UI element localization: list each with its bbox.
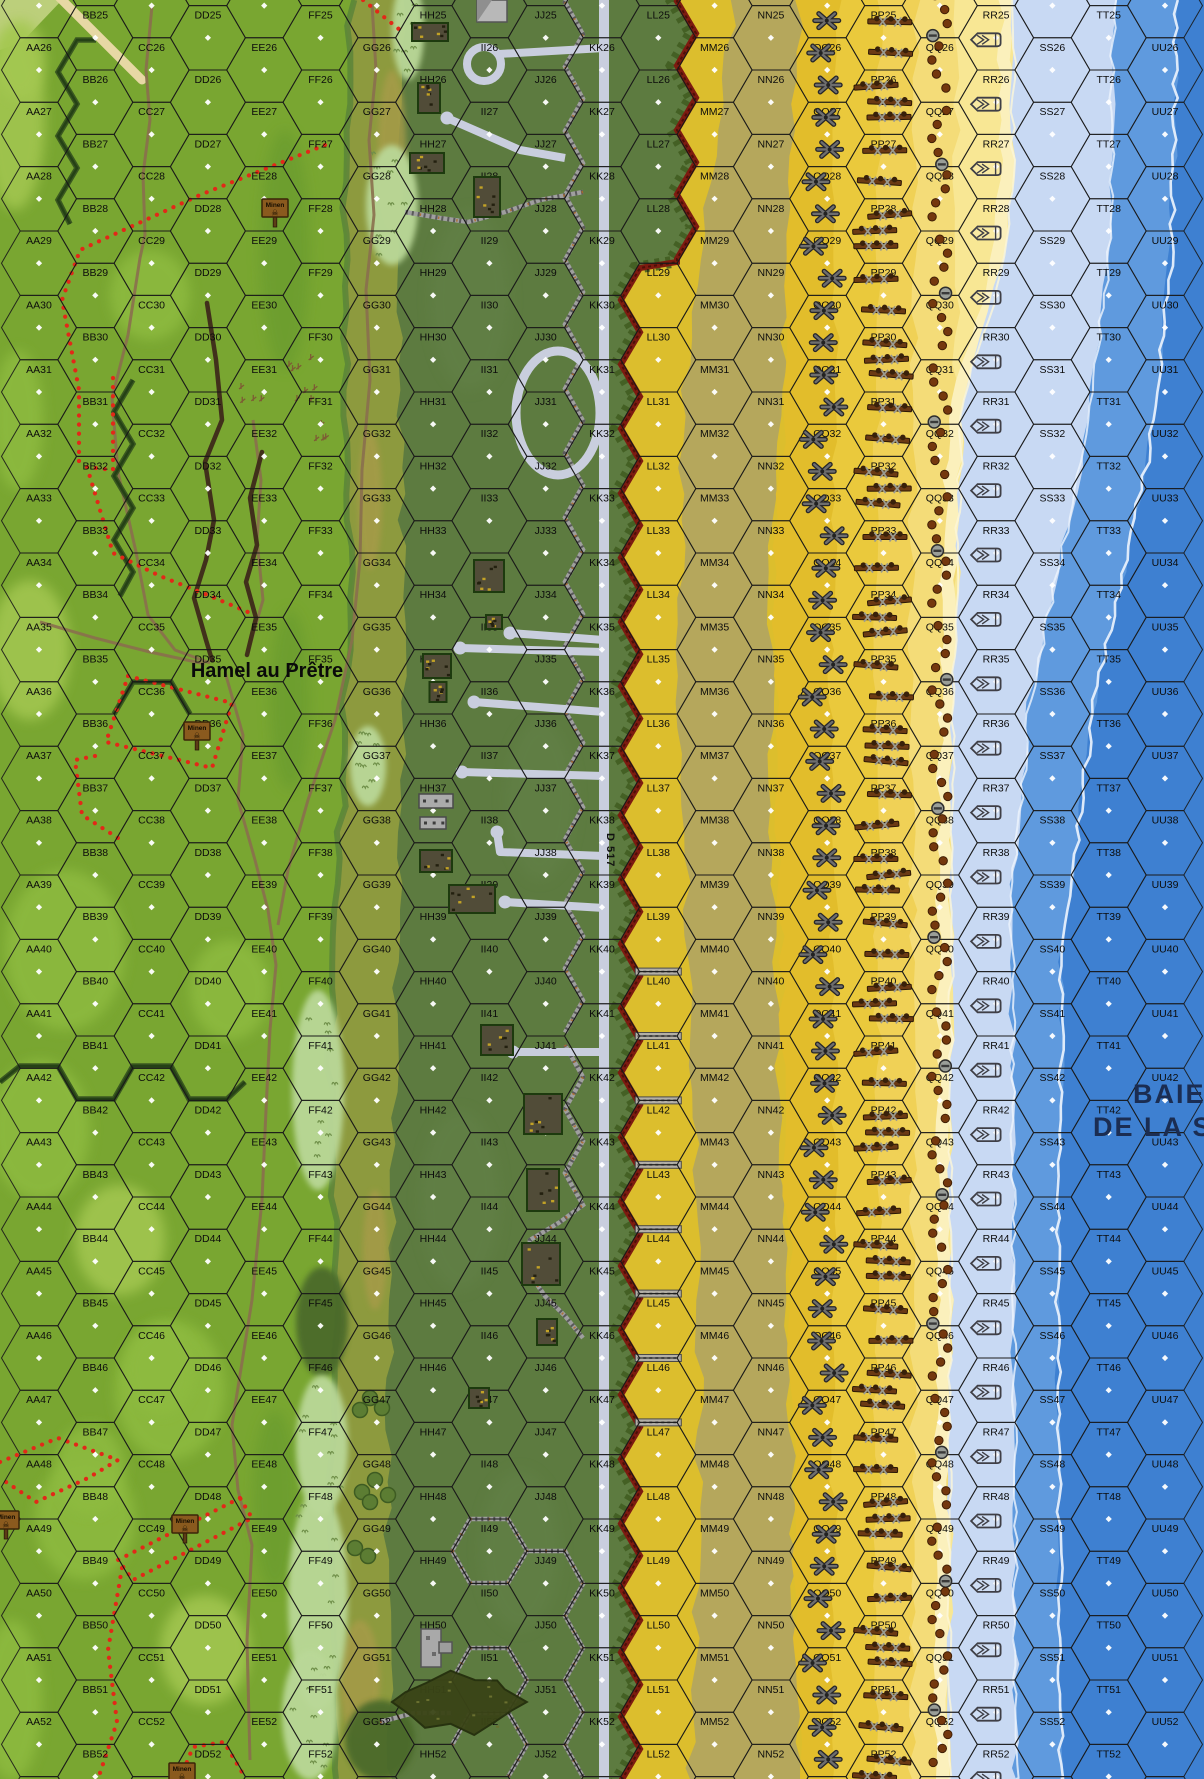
mine-icon [936, 700, 944, 708]
hex-label: BB45 [82, 1298, 108, 1310]
hex-label: JJ52 [535, 1748, 557, 1760]
hex-label: SS39 [1040, 879, 1066, 891]
hex-label: FF38 [308, 847, 333, 859]
hex-label: KK37 [589, 750, 615, 762]
hex-label: CC33 [138, 493, 165, 505]
hex-label: MM37 [700, 750, 729, 762]
hex-label: RR33 [983, 525, 1010, 537]
hex-label: NN52 [757, 1748, 784, 1760]
hex-label: DD33 [194, 525, 221, 537]
hex-label: RR39 [983, 911, 1010, 923]
hex-label: GG33 [363, 493, 391, 505]
landing-craft-icon [971, 227, 1001, 240]
hex-label: AA26 [26, 42, 52, 54]
hex-label: DD30 [194, 332, 221, 344]
mine-icon [941, 1114, 949, 1122]
hex-label: RR46 [983, 1362, 1010, 1374]
hex-label: CC40 [138, 943, 165, 955]
hex-label: FF47 [308, 1426, 333, 1438]
hex-label: KK28 [589, 171, 615, 183]
hex-label: TT37 [1096, 782, 1121, 794]
building-camo [481, 1025, 513, 1055]
hex-label: FF48 [308, 1491, 333, 1503]
hex-label: JJ49 [535, 1555, 557, 1567]
hex-label: SS34 [1040, 557, 1066, 569]
hex-label: LL36 [647, 718, 671, 730]
mine-icon [940, 470, 948, 478]
hex-label: CC43 [138, 1137, 165, 1149]
hex-label: MM45 [700, 1265, 729, 1277]
hex-label: DD37 [194, 782, 221, 794]
hex-label: JJ31 [535, 396, 557, 408]
hex-label: NN51 [757, 1684, 784, 1696]
mine-icon [935, 971, 943, 979]
landing-craft-icon [971, 291, 1001, 304]
mine-icon [928, 1537, 936, 1545]
hex-label: DD28 [194, 203, 221, 215]
landing-craft-icon [971, 677, 1001, 690]
landing-craft-icon [971, 1386, 1001, 1399]
hex-label: QQ50 [926, 1587, 954, 1599]
mine-icon [935, 1436, 943, 1444]
hex-label: AA43 [26, 1137, 52, 1149]
hex-label: RR42 [983, 1104, 1010, 1116]
building-camo [537, 1319, 557, 1345]
hex-label: GG27 [363, 106, 391, 118]
hex-label: RR45 [983, 1298, 1010, 1310]
hex-label: UU40 [1152, 943, 1179, 955]
mine-icon [940, 1408, 948, 1416]
hex-label: SS26 [1040, 42, 1066, 54]
mine-icon [943, 879, 951, 887]
hex-label: UU28 [1152, 171, 1179, 183]
hex-label: NN38 [757, 847, 784, 859]
hex-label: RR32 [983, 460, 1010, 472]
hex-label: NN45 [757, 1298, 784, 1310]
hex-label: UU26 [1152, 42, 1179, 54]
hex-label: GG49 [363, 1523, 391, 1535]
hex-label: HH46 [420, 1362, 447, 1374]
hex-label: DD27 [194, 138, 221, 150]
hex-label: KK48 [589, 1459, 615, 1471]
hex-label: TT33 [1096, 525, 1121, 537]
hex-label: KK45 [589, 1265, 615, 1277]
mine-icon [930, 378, 938, 386]
hex-label: DD40 [194, 976, 221, 988]
hex-label: MM42 [700, 1072, 729, 1084]
landing-craft-icon [971, 549, 1001, 562]
mine-icon [931, 921, 939, 929]
hex-label: FF39 [308, 911, 333, 923]
mine-icon [942, 557, 950, 565]
hex-label: EE30 [251, 299, 277, 311]
hex-label: FF33 [308, 525, 333, 537]
building-camo [412, 23, 448, 41]
hex-label: AA41 [26, 1008, 52, 1020]
hex-label: TT39 [1096, 911, 1121, 923]
hex-label: EE40 [251, 943, 277, 955]
hex-label: RR35 [983, 654, 1010, 666]
hex-label: DD47 [194, 1426, 221, 1438]
hex-label: DD50 [194, 1620, 221, 1632]
hex-label: RR48 [983, 1491, 1010, 1503]
mine-icon [929, 1694, 937, 1702]
hex-label: LL35 [647, 654, 671, 666]
hex-label: RR29 [983, 267, 1010, 279]
building-bunker [420, 817, 446, 829]
mine-icon [930, 843, 938, 851]
hex-label: HH44 [420, 1233, 447, 1245]
hex-label: II41 [481, 1008, 499, 1020]
hex-label: MM49 [700, 1523, 729, 1535]
hex-label: DD52 [194, 1748, 221, 1760]
hex-label: BB30 [82, 332, 108, 344]
mine-icon [944, 1265, 952, 1273]
mine-icon [931, 1137, 939, 1145]
landing-craft-icon [971, 1708, 1001, 1721]
marsh-patch [292, 990, 344, 1190]
hex-label: RR31 [983, 396, 1010, 408]
hex-label: RR52 [983, 1748, 1010, 1760]
mine-icon [944, 1730, 952, 1738]
hex-label: KK30 [589, 299, 615, 311]
hex-label: DD26 [194, 74, 221, 86]
hex-label: LL30 [647, 332, 671, 344]
hex-label: II37 [481, 750, 499, 762]
mine-icon [943, 1565, 951, 1573]
hex-label: JJ41 [535, 1040, 557, 1052]
hex-label: JJ50 [535, 1620, 557, 1632]
hex-label: BB27 [82, 138, 108, 150]
hex-label: SS29 [1040, 235, 1066, 247]
hex-label: SS50 [1040, 1587, 1066, 1599]
hex-label: EE32 [251, 428, 277, 440]
hex-label: DD31 [194, 396, 221, 408]
hex-label: FF25 [308, 10, 333, 22]
hex-label: DD48 [194, 1491, 221, 1503]
hex-label: KK44 [589, 1201, 615, 1213]
hex-label: MM52 [700, 1716, 729, 1728]
hex-label: HH52 [420, 1748, 447, 1760]
hex-label: BB47 [82, 1426, 108, 1438]
hex-label: HH32 [420, 460, 447, 472]
hex-label: EE51 [251, 1652, 277, 1664]
hex-label: FF44 [308, 1233, 333, 1245]
hex-label: RR37 [983, 782, 1010, 794]
hex-label: MM30 [700, 299, 729, 311]
hex-label: BB50 [82, 1620, 108, 1632]
hex-label: HH48 [420, 1491, 447, 1503]
hex-label: EE36 [251, 686, 277, 698]
hex-label: MM32 [700, 428, 729, 440]
mine-icon [938, 341, 946, 349]
hex-label: CC34 [138, 557, 165, 569]
hex-label: NN37 [757, 782, 784, 794]
hex-label: GG42 [363, 1072, 391, 1084]
mine-icon [937, 778, 945, 786]
mine-icon [933, 120, 941, 128]
mine-icon [928, 213, 936, 221]
hex-label: FF27 [308, 138, 333, 150]
hex-label: MM41 [700, 1008, 729, 1020]
hex-label: JJ51 [535, 1684, 557, 1696]
hex-label: TT43 [1096, 1169, 1121, 1181]
hex-label: DD29 [194, 267, 221, 279]
building-camo [410, 153, 444, 173]
hex-label: AA34 [26, 557, 52, 569]
hex-label: JJ48 [535, 1491, 557, 1503]
skull-icon: ☠ [2, 1521, 9, 1530]
hex-label: KK33 [589, 493, 615, 505]
beach-stake-obstacle-icon [854, 853, 898, 863]
minefield-sign: Minen☠ [169, 1763, 195, 1779]
hex-label: GG39 [363, 879, 391, 891]
mine-icon [932, 1008, 940, 1016]
hex-label: UU50 [1152, 1587, 1179, 1599]
mine-icon [928, 521, 936, 529]
teller-mine-icon [927, 1318, 939, 1330]
hex-label: FF26 [308, 74, 333, 86]
hex-label: II26 [481, 42, 499, 54]
hex-label: LL47 [647, 1426, 671, 1438]
hex-label: NN31 [757, 396, 784, 408]
mine-icon [928, 134, 936, 142]
hex-label: UU41 [1152, 1008, 1179, 1020]
hex-label: UU37 [1152, 750, 1179, 762]
hex-label: FF51 [308, 1684, 333, 1696]
hex-label: RR38 [983, 847, 1010, 859]
hex-label: AA52 [26, 1716, 52, 1728]
hex-label: LL34 [647, 589, 671, 601]
skull-icon: ☠ [178, 1773, 185, 1779]
teller-mine-icon [940, 1575, 952, 1587]
hex-label: RR49 [983, 1555, 1010, 1567]
building-camo [474, 177, 500, 217]
mine-icon [928, 1151, 936, 1159]
hex-label: GG28 [363, 171, 391, 183]
hex-label: TT48 [1096, 1491, 1121, 1503]
hex-label: SS41 [1040, 1008, 1066, 1020]
mine-icon [942, 1022, 950, 1030]
mine-icon [928, 1372, 936, 1380]
mine-icon [932, 1473, 940, 1481]
hex-label: NN47 [757, 1426, 784, 1438]
hex-label: EE44 [251, 1201, 277, 1213]
mine-icon [928, 442, 936, 450]
hex-label: LL29 [647, 267, 671, 279]
hex-label: TT25 [1096, 10, 1121, 22]
mine-icon [929, 1758, 937, 1766]
hex-label: LL48 [647, 1491, 671, 1503]
hex-label: SS30 [1040, 299, 1066, 311]
hex-label: QQ47 [926, 1394, 954, 1406]
hex-label: MM26 [700, 42, 729, 54]
hex-label: CC50 [138, 1587, 165, 1599]
bush-icon [363, 1495, 378, 1510]
hex-label: GG43 [363, 1137, 391, 1149]
hex-label: TT51 [1096, 1684, 1121, 1696]
hex-label: BB28 [82, 203, 108, 215]
hex-label: FF31 [308, 396, 333, 408]
mine-icon [936, 893, 944, 901]
hex-label: HH43 [420, 1169, 447, 1181]
mine-icon [936, 1165, 944, 1173]
landing-craft-icon [971, 355, 1001, 368]
hex-label: BB41 [82, 1040, 108, 1052]
hex-label: BB32 [82, 460, 108, 472]
hex-label: CC31 [138, 364, 165, 376]
hex-label: RR47 [983, 1426, 1010, 1438]
landing-craft-icon [971, 613, 1001, 626]
hex-label: GG34 [363, 557, 391, 569]
teller-mine-icon [928, 931, 940, 943]
hex-label: FF34 [308, 589, 333, 601]
hex-label: EE50 [251, 1587, 277, 1599]
hex-label: NN42 [757, 1104, 784, 1116]
mine-icon [934, 1551, 942, 1559]
hex-label: KK47 [589, 1394, 615, 1406]
hex-label: EE29 [251, 235, 277, 247]
hex-label: JJ40 [535, 976, 557, 988]
hex-label: EE34 [251, 557, 277, 569]
hex-label: SS49 [1040, 1523, 1066, 1535]
hex-label: AA30 [26, 299, 52, 311]
road-name-label: D 517 [604, 833, 616, 867]
teller-mine-icon [936, 1446, 948, 1458]
hex-label: MM46 [700, 1330, 729, 1342]
marsh-patch [350, 726, 386, 806]
hex-label: MM35 [700, 621, 729, 633]
landing-craft-icon [971, 1064, 1001, 1077]
hex-label: GG36 [363, 686, 391, 698]
hex-label: LL37 [647, 782, 671, 794]
hex-label: BB31 [82, 396, 108, 408]
hex-label: UU47 [1152, 1394, 1179, 1406]
hex-label: JJ46 [535, 1362, 557, 1374]
hex-label: MM44 [700, 1201, 729, 1213]
hex-label: LL25 [647, 10, 671, 22]
teller-mine-icon [936, 1189, 948, 1201]
hex-label: TT31 [1096, 396, 1121, 408]
hex-label: II31 [481, 364, 499, 376]
hex-label: BB25 [82, 10, 108, 22]
hex-label: EE47 [251, 1394, 277, 1406]
mine-icon [934, 148, 942, 156]
mine-icon [929, 1229, 937, 1237]
teller-mine-icon [940, 287, 952, 299]
hex-label: CC28 [138, 171, 165, 183]
hex-label: MM40 [700, 943, 729, 955]
hex-label: NN25 [757, 10, 784, 22]
hex-label: NN32 [757, 460, 784, 472]
hex-label: EE35 [251, 621, 277, 633]
hex-label: MM39 [700, 879, 729, 891]
hex-label: BB35 [82, 654, 108, 666]
hex-label: GG31 [363, 364, 391, 376]
hex-label: HH41 [420, 1040, 447, 1052]
hex-label: AA48 [26, 1459, 52, 1471]
hex-label: II44 [481, 1201, 499, 1213]
hex-label: AA37 [26, 750, 52, 762]
teller-mine-icon [932, 802, 944, 814]
mine-icon [928, 56, 936, 64]
mine-icon [939, 857, 947, 865]
hex-label: EE33 [251, 493, 277, 505]
hex-label: LL40 [647, 976, 671, 988]
landing-craft-icon [971, 742, 1001, 755]
hex-label: II30 [481, 299, 499, 311]
hex-label: BB42 [82, 1104, 108, 1116]
hex-label: GG46 [363, 1330, 391, 1342]
hex-label: MM50 [700, 1587, 729, 1599]
hex-label: DD39 [194, 911, 221, 923]
hex-label: LL41 [647, 1040, 671, 1052]
hex-label: JJ26 [535, 74, 557, 86]
hex-label: UU38 [1152, 815, 1179, 827]
hex-label: GG51 [363, 1652, 391, 1664]
hex-label: NN43 [757, 1169, 784, 1181]
mine-icon [934, 1086, 942, 1094]
hex-label: DD38 [194, 847, 221, 859]
landing-craft-icon [971, 98, 1001, 111]
mine-icon [942, 84, 950, 92]
road-dead-end [441, 112, 454, 125]
hex-label: AA45 [26, 1265, 52, 1277]
mine-icon [937, 1716, 945, 1724]
hex-label: MM34 [700, 557, 729, 569]
landing-craft-icon [971, 806, 1001, 819]
mine-icon [928, 1459, 936, 1467]
hex-label: SS52 [1040, 1716, 1066, 1728]
hex-label: II38 [481, 815, 499, 827]
hex-label: KK49 [589, 1523, 615, 1535]
hex-label: SS40 [1040, 943, 1066, 955]
hex-label: LL46 [647, 1362, 671, 1374]
hex-label: FF32 [308, 460, 333, 472]
hex-label: UU49 [1152, 1523, 1179, 1535]
hex-label: DD42 [194, 1104, 221, 1116]
hex-label: NN33 [757, 525, 784, 537]
hex-label: MM33 [700, 493, 729, 505]
hex-label: FF36 [308, 718, 333, 730]
hex-label: MM31 [700, 364, 729, 376]
hex-label: HH31 [420, 396, 447, 408]
hex-label: II42 [481, 1072, 499, 1084]
hex-label: DD45 [194, 1298, 221, 1310]
hex-label: BB29 [82, 267, 108, 279]
hex-label: GG38 [363, 815, 391, 827]
hex-label: AA35 [26, 621, 52, 633]
hex-label: II45 [481, 1265, 499, 1277]
hex-label: JJ36 [535, 718, 557, 730]
hex-label: TT32 [1096, 460, 1121, 472]
hex-label: FF45 [308, 1298, 333, 1310]
hex-label: CC48 [138, 1459, 165, 1471]
mine-icon [930, 1680, 938, 1688]
beach-stake-obstacle-icon [869, 1335, 913, 1345]
hex-label: NN26 [757, 74, 784, 86]
hex-label: BB51 [82, 1684, 108, 1696]
mine-icon [936, 235, 944, 243]
hex-label: KK50 [589, 1587, 615, 1599]
hex-label: NN50 [757, 1620, 784, 1632]
hex-label: CC26 [138, 42, 165, 54]
hex-label: RR34 [983, 589, 1010, 601]
road-dead-end [491, 826, 504, 839]
teller-mine-icon [928, 1704, 940, 1716]
hex-label: KK46 [589, 1330, 615, 1342]
hex-label: AA47 [26, 1394, 52, 1406]
